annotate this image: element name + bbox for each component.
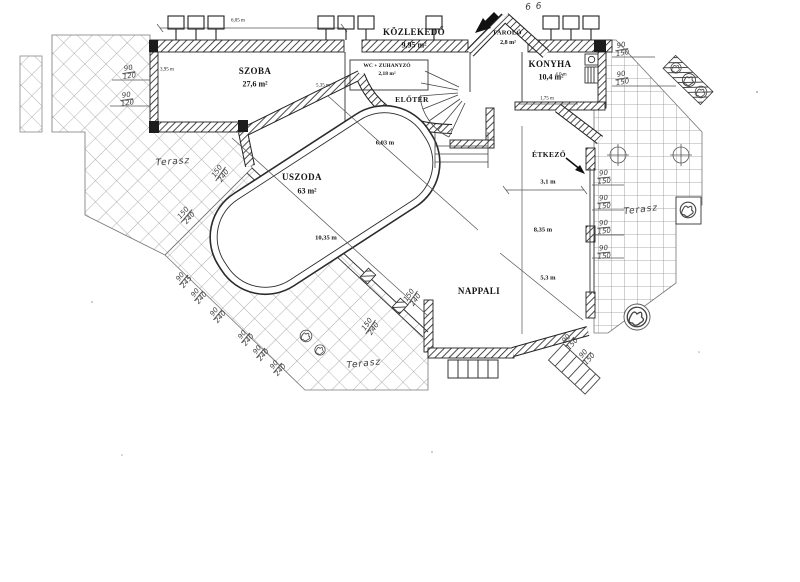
room-area-kozlekedo: 9,95 m² [401, 42, 426, 51]
window-size-90-150: 90 150 [614, 41, 630, 59]
patio-steps [448, 360, 498, 378]
dim-konyha-bottom: 1,75 m [540, 96, 554, 101]
room-label-wc: WC + ZUHANYZÓ [363, 64, 410, 70]
dim-nappali-width: 5,3 m [540, 274, 555, 281]
dim-pool-width: 6,03 m [376, 139, 394, 146]
window-size-90-120: 90 120 [121, 64, 136, 81]
dim-pool-length: 10,35 m [315, 234, 337, 241]
exterior-steps [548, 344, 600, 394]
window-height-value: 150 [597, 178, 611, 186]
dim-szoba-left: 3,95 m [160, 67, 174, 72]
window-height-value: 150 [597, 253, 611, 261]
hedge-strip [20, 56, 42, 132]
room-label-nappali: NAPPALI [458, 287, 500, 297]
room-label-kozlekedo: KÖZLEKEDŐ [383, 28, 445, 38]
room-label-tarolo: TÁROLÓ [492, 29, 521, 36]
etkezo-arrow-icon [566, 158, 585, 174]
window-size-90-120: 90 120 [119, 91, 134, 108]
floorplan-page: SZOBA 27,6 m² KÖZLEKEDŐ 9,95 m² TÁROLÓ 2… [0, 0, 800, 582]
room-area-szoba: 27,6 m² [242, 81, 267, 90]
planter-right [676, 197, 701, 224]
window-size-90-150: 90 150 [614, 70, 630, 88]
dim-nappali-length: 8,35 m [534, 226, 552, 233]
window-height-value: 150 [597, 228, 611, 236]
window-size-90-150: 90 150 [597, 170, 612, 187]
room-label-konyha: KONYHA [529, 60, 572, 70]
window-size-90-150: 90 150 [597, 220, 612, 237]
room-label-szoba: SZOBA [239, 67, 272, 77]
plant-circle [624, 304, 650, 330]
dim-etkezo-width: 3,1 m [540, 178, 555, 185]
floorplan-drawing [0, 0, 800, 582]
window-size-90-150: 90 150 [597, 245, 612, 262]
room-label-eloter: ELŐTÉR [395, 96, 429, 104]
hand-note-top: 6 6 [525, 2, 543, 13]
kitchen-appliances [585, 54, 598, 83]
window-size-90-150: 90 150 [597, 195, 612, 212]
dim-szoba-width: 6,05 m [231, 18, 245, 23]
room-area-tarolo: 2,8 m² [500, 40, 516, 46]
dim-szoba-height: 5,35 m [316, 83, 330, 88]
room-area-uszoda: 63 m² [297, 188, 316, 197]
planter-top-right [663, 55, 713, 104]
window-height-value: 150 [597, 203, 611, 211]
room-area-wc: 2,18 m² [378, 72, 395, 78]
room-label-etkezo: ÉTKEZŐ [532, 151, 566, 159]
dim-konyha-side: 4,0 m [555, 72, 566, 77]
room-label-uszoda: USZODA [282, 173, 322, 183]
